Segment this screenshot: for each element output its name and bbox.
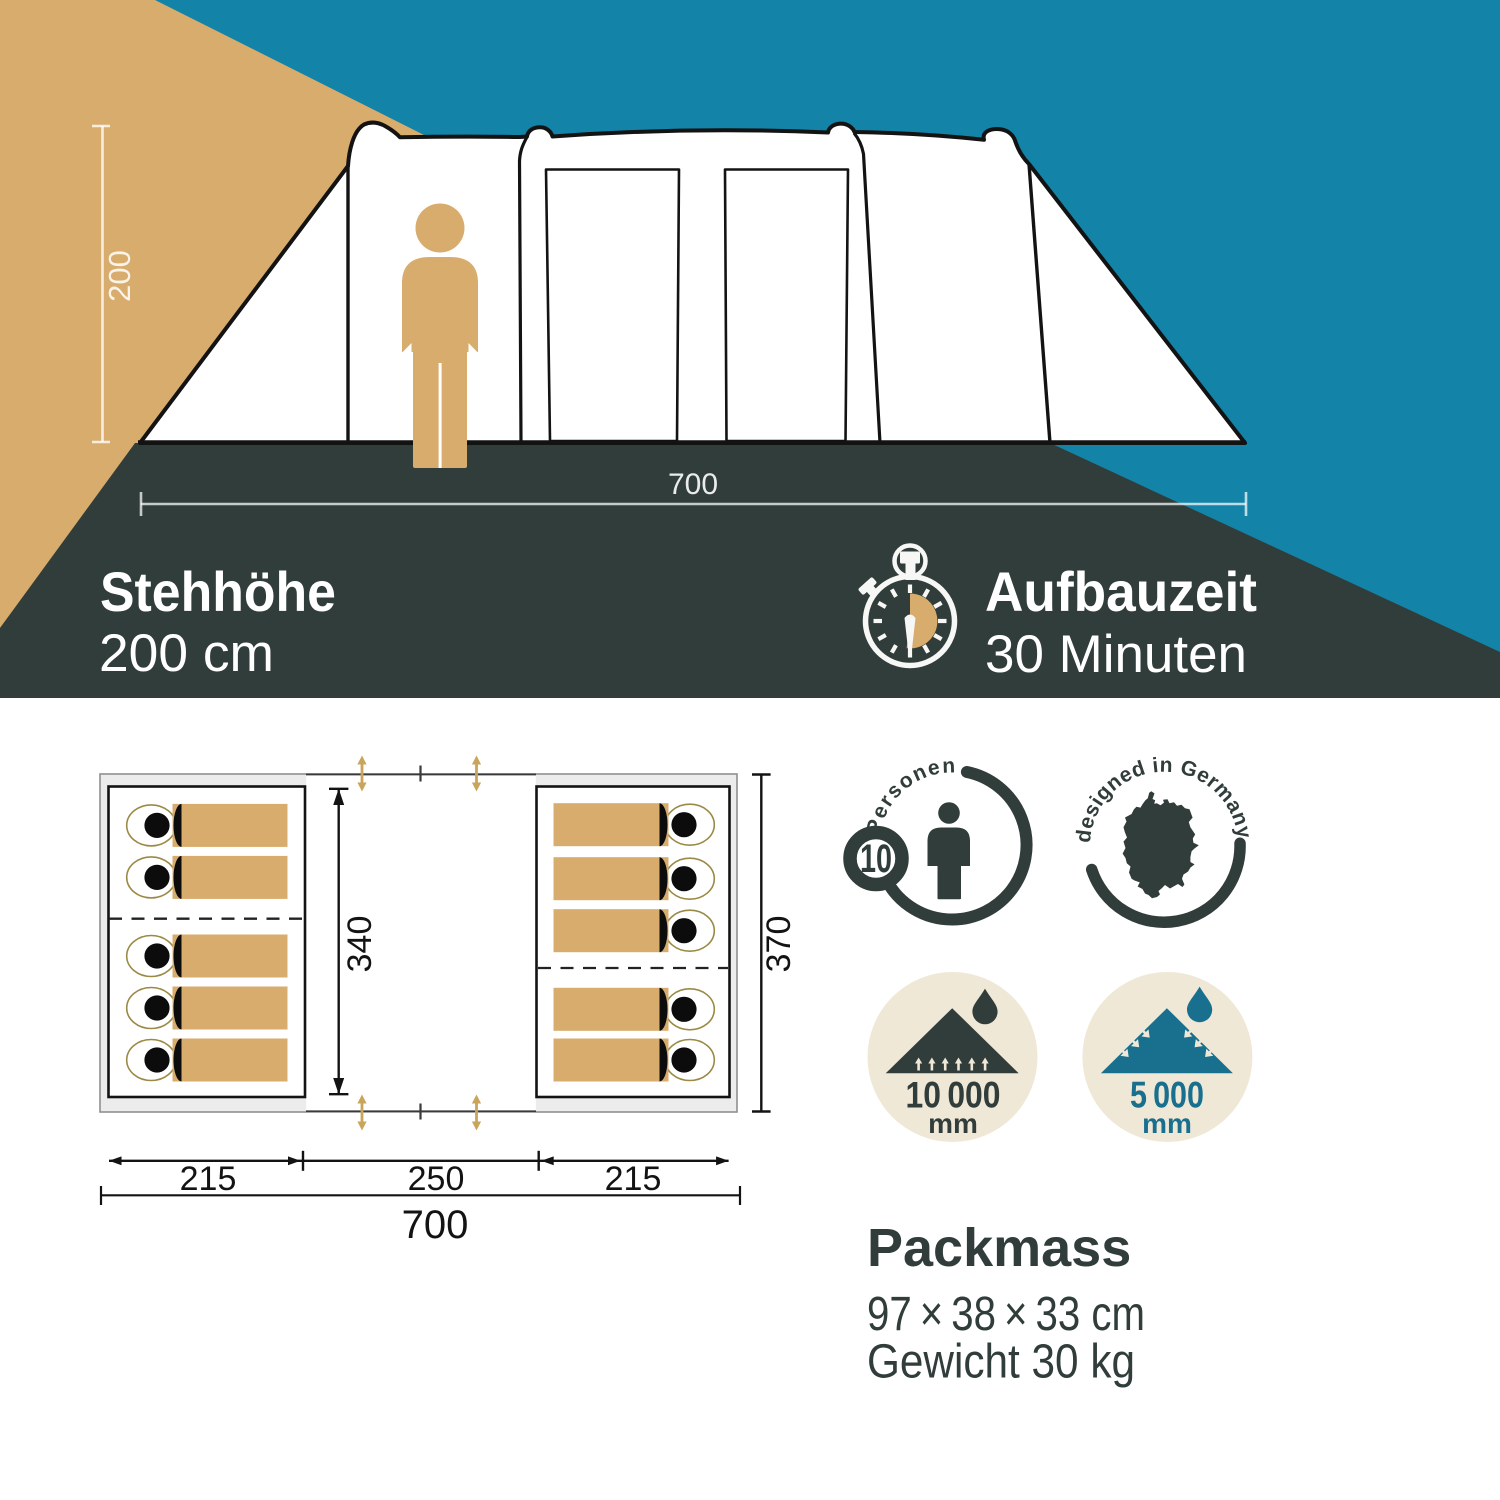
svg-text:200: 200 — [102, 250, 137, 302]
svg-text:Stehhöhe: Stehhöhe — [100, 560, 336, 623]
svg-text:250: 250 — [408, 1160, 465, 1198]
svg-text:370: 370 — [760, 916, 798, 973]
svg-text:700: 700 — [668, 468, 718, 501]
svg-text:340: 340 — [341, 916, 379, 973]
svg-text:200 cm: 200 cm — [99, 624, 274, 683]
svg-text:97 × 38 × 33 cm: 97 × 38 × 33 cm — [867, 1288, 1145, 1341]
svg-text:Gewicht 30 kg: Gewicht 30 kg — [867, 1336, 1135, 1389]
svg-text:Packmass: Packmass — [867, 1218, 1131, 1278]
svg-text:215: 215 — [605, 1160, 662, 1198]
svg-text:10: 10 — [860, 837, 892, 881]
svg-text:mm: mm — [1142, 1108, 1192, 1139]
svg-text:30 Minuten: 30 Minuten — [985, 625, 1247, 684]
svg-text:Aufbauzeit: Aufbauzeit — [985, 560, 1257, 623]
svg-text:215: 215 — [180, 1160, 237, 1198]
svg-text:700: 700 — [402, 1203, 469, 1247]
svg-text:mm: mm — [928, 1108, 978, 1139]
